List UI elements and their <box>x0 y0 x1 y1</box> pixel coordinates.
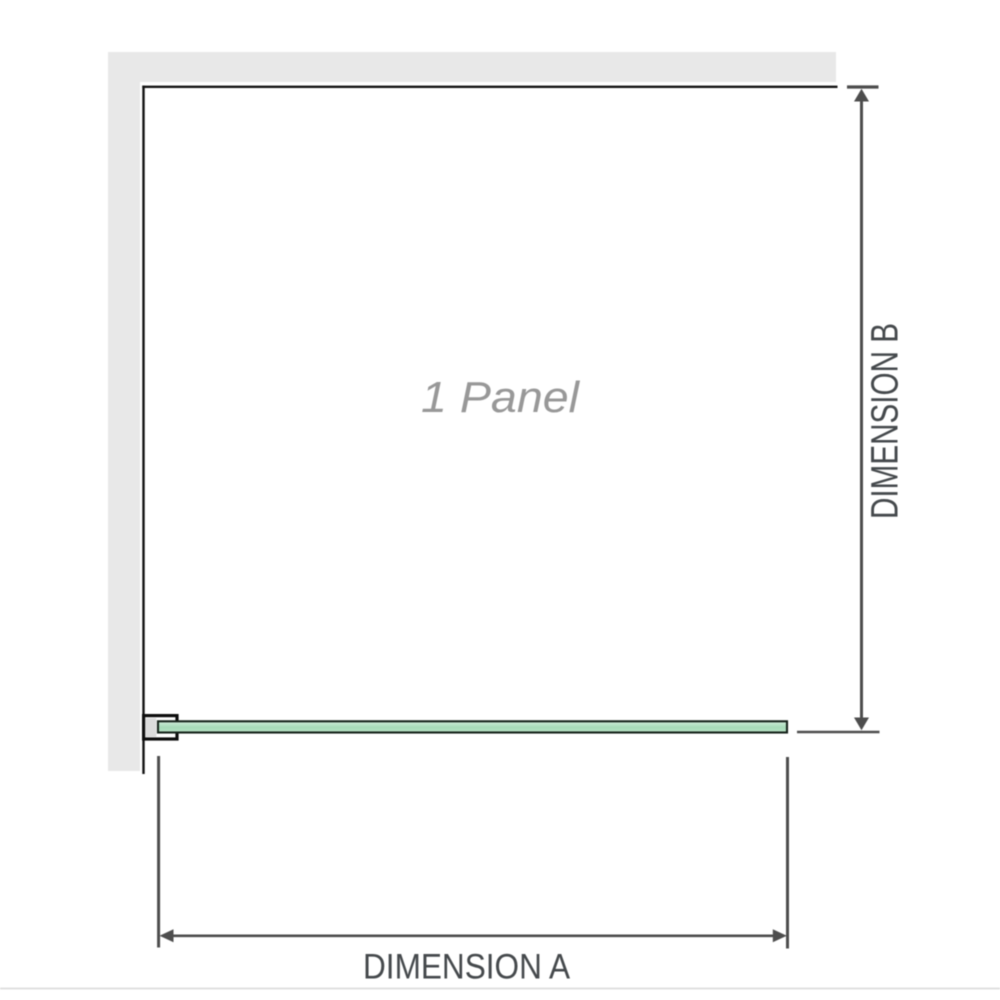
svg-text:DIMENSION A: DIMENSION A <box>363 948 571 987</box>
svg-text:1 Panel: 1 Panel <box>421 373 580 422</box>
svg-text:DIMENSION B: DIMENSION B <box>865 323 907 519</box>
